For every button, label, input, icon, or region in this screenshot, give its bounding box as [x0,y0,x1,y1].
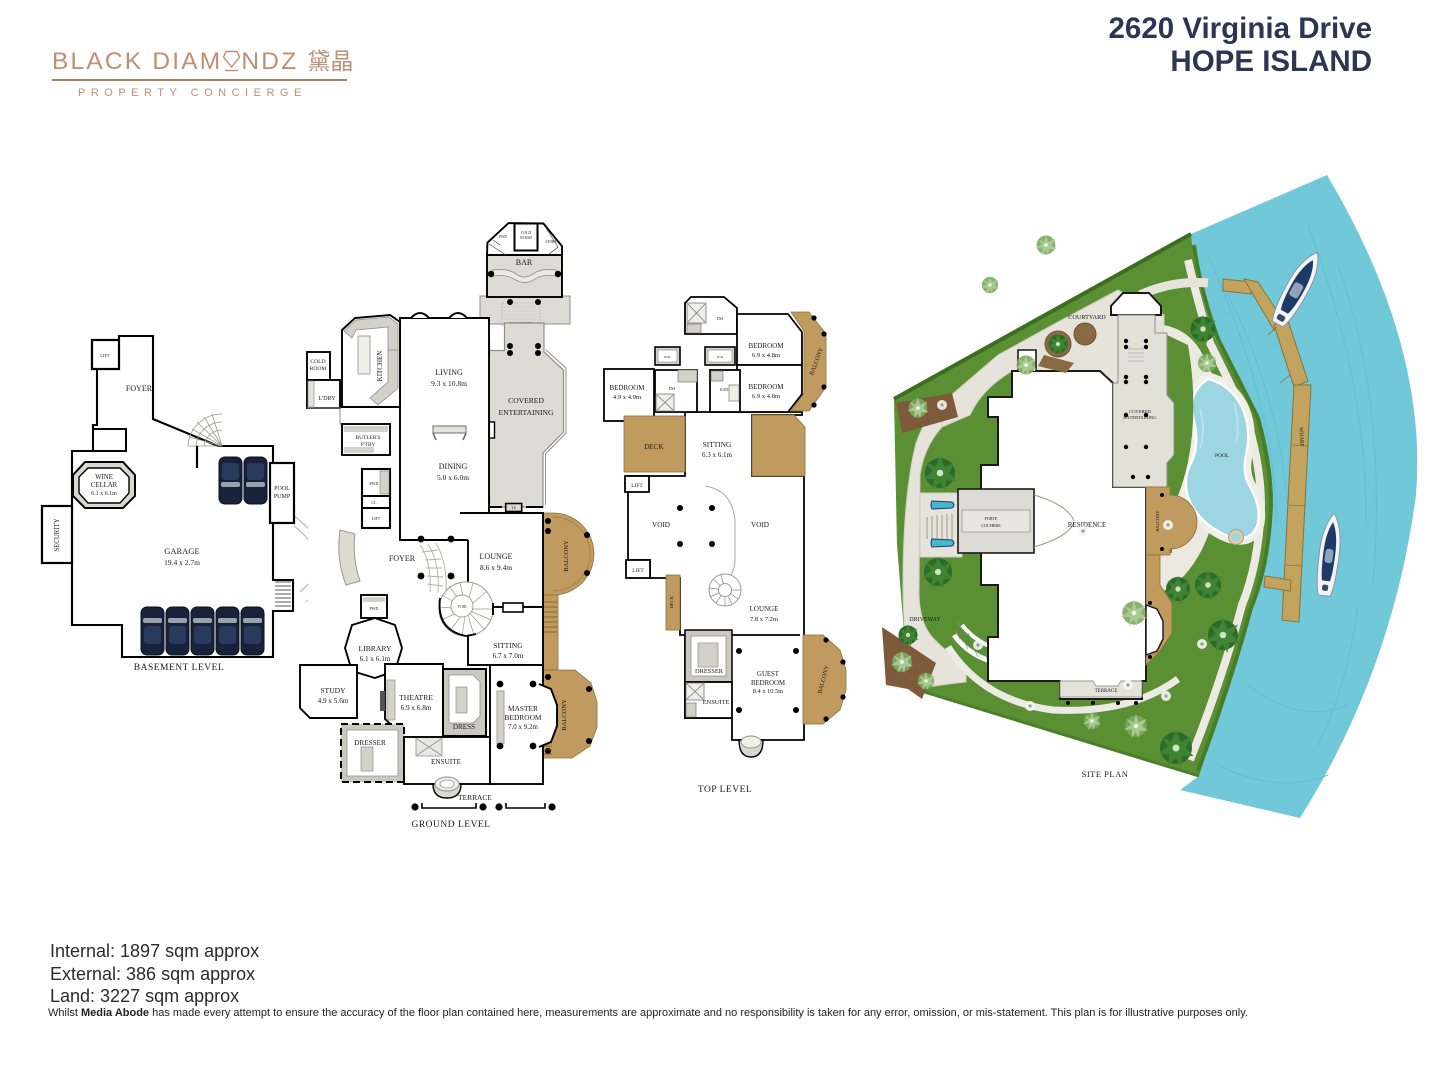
svg-text:ENSUITE: ENSUITE [431,758,462,766]
svg-text:COCHERE: COCHERE [981,523,1001,528]
svg-text:6.9 x 4.8m: 6.9 x 4.8m [752,352,781,359]
svg-text:SECURITY: SECURITY [54,518,61,551]
svg-text:9.3 x 10.8m: 9.3 x 10.8m [431,379,467,388]
svg-text:GUEST: GUEST [757,671,780,678]
svg-text:GARAGE: GARAGE [164,546,199,556]
svg-text:6.1 x 6.1m: 6.1 x 6.1m [91,491,117,497]
svg-text:BASEMENT LEVEL: BASEMENT LEVEL [134,663,224,673]
svg-text:SITTING: SITTING [493,641,523,650]
svg-text:8.4 x 10.5m: 8.4 x 10.5m [753,688,784,695]
svg-text:STUDY: STUDY [320,686,346,695]
svg-text:PWD: PWD [370,606,379,611]
svg-text:LIFT: LIFT [631,483,643,489]
svg-text:TERRACE: TERRACE [1095,689,1118,694]
svg-text:BEDROOM: BEDROOM [505,713,542,722]
svg-text:VOID: VOID [751,521,769,529]
svg-text:KITCHEN: KITCHEN [376,351,384,382]
svg-text:7.0 x 9.2m: 7.0 x 9.2m [508,723,539,731]
svg-text:WHARF: WHARF [1297,427,1304,447]
svg-text:COURTYARD: COURTYARD [1068,314,1106,321]
svg-text:DRESS: DRESS [453,723,475,731]
svg-text:5.0 x 6.0m: 5.0 x 6.0m [437,473,469,482]
svg-text:ENTERTAINING: ENTERTAINING [498,408,554,417]
svg-text:THEATRE: THEATRE [399,693,433,702]
svg-text:SITTING: SITTING [703,440,732,449]
svg-text:BUTLER'S: BUTLER'S [356,435,381,441]
svg-text:WINE: WINE [95,474,113,481]
svg-text:VOID: VOID [652,521,670,529]
svg-text:ROOM: ROOM [310,366,327,372]
svg-text:TV: TV [511,506,516,511]
svg-text:6.3 x 6.1m: 6.3 x 6.1m [702,451,733,459]
svg-text:DECK: DECK [644,443,663,451]
svg-text:W/R: W/R [717,355,724,359]
svg-text:MASTER: MASTER [508,704,538,713]
svg-text:PORTE: PORTE [984,516,997,521]
svg-text:BALCONY: BALCONY [561,699,568,731]
svg-text:6.7 x 7.0m: 6.7 x 7.0m [493,652,524,660]
svg-text:BEDROOM: BEDROOM [609,384,645,392]
svg-text:COVERED: COVERED [1129,409,1151,414]
svg-text:CELLAR: CELLAR [91,482,118,489]
svg-text:6.1 x 6.1m: 6.1 x 6.1m [360,655,391,663]
svg-text:DRESSER: DRESSER [354,739,386,747]
svg-text:BATH: BATH [720,388,730,392]
svg-text:W/R: W/R [664,355,671,359]
svg-text:ENTERTAINING: ENTERTAINING [1123,415,1157,420]
svg-text:CL: CL [371,500,377,505]
svg-text:TOP LEVEL: TOP LEVEL [698,785,752,795]
svg-text:7.8 x 7.2m: 7.8 x 7.2m [750,616,779,623]
svg-text:ENSUITE: ENSUITE [703,699,730,706]
svg-text:PWD: PWD [370,481,379,486]
svg-text:POOL: POOL [274,486,290,492]
svg-text:6.9 x 4.8m: 6.9 x 4.8m [752,393,781,400]
svg-text:FOYER: FOYER [126,384,153,393]
svg-text:COLD: COLD [310,359,325,365]
svg-text:DRESSER: DRESSER [695,668,724,675]
svg-text:LOUNGE: LOUNGE [750,605,779,613]
svg-text:4.9 x 5.6m: 4.9 x 5.6m [318,697,349,705]
svg-text:BEDROOM: BEDROOM [748,383,784,391]
svg-text:LIVING: LIVING [435,368,463,377]
svg-text:LOUNGE: LOUNGE [480,552,513,561]
svg-text:ENS: ENS [669,387,676,391]
svg-text:POOL: POOL [1215,453,1229,459]
svg-text:SITE PLAN: SITE PLAN [1082,769,1129,779]
svg-text:DRIVEWAY: DRIVEWAY [909,617,941,623]
svg-text:BALCONY: BALCONY [1155,510,1160,532]
svg-text:BEDROOM: BEDROOM [748,342,784,350]
svg-text:BAR: BAR [516,258,533,267]
svg-text:L'DRY: L'DRY [318,396,336,402]
svg-text:ROOM: ROOM [520,236,532,240]
svg-text:COVERED: COVERED [508,396,544,405]
svg-text:TERRACE: TERRACE [458,793,492,802]
svg-text:LIFT: LIFT [372,516,381,521]
svg-text:LIFT: LIFT [100,353,110,358]
svg-text:P'TRY: P'TRY [361,442,376,448]
svg-text:6.9 x 6.8m: 6.9 x 6.8m [401,704,432,712]
svg-text:GROUND LEVEL: GROUND LEVEL [411,820,490,830]
svg-text:LIBRARY: LIBRARY [359,644,392,653]
svg-text:19.4 x 2.7m: 19.4 x 2.7m [164,558,200,567]
svg-text:FOYER: FOYER [389,554,416,563]
svg-text:VOID: VOID [458,605,467,609]
svg-text:DECK: DECK [669,595,674,608]
svg-text:PWD: PWD [499,235,507,239]
svg-text:RESIDENCE: RESIDENCE [1068,521,1107,529]
svg-text:COLD: COLD [521,231,532,235]
svg-text:DINING: DINING [439,462,468,471]
svg-text:BEDROOM: BEDROOM [751,680,785,687]
svg-text:4.9 x 4.9m: 4.9 x 4.9m [613,394,642,401]
svg-text:8.6 x 9.4m: 8.6 x 9.4m [480,563,512,572]
svg-text:LIFT: LIFT [632,568,644,574]
svg-text:PUMP: PUMP [274,494,291,500]
svg-text:BALCONY: BALCONY [563,540,570,572]
svg-text:STORE: STORE [545,240,557,244]
svg-text:ENS: ENS [717,317,724,321]
